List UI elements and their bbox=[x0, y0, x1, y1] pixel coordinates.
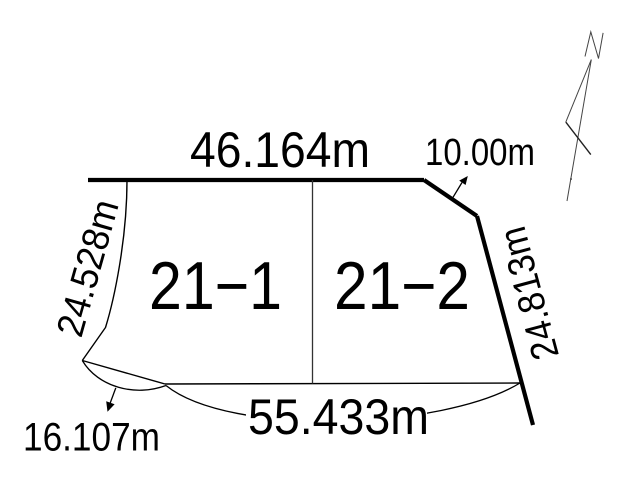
svg-text:21−2: 21−2 bbox=[334, 248, 470, 324]
svg-text:46.164m: 46.164m bbox=[190, 122, 370, 178]
svg-text:21−1: 21−1 bbox=[149, 248, 282, 324]
svg-text:55.433m: 55.433m bbox=[248, 389, 429, 445]
svg-text:16.107m: 16.107m bbox=[23, 416, 160, 460]
svg-text:10.00m: 10.00m bbox=[425, 132, 535, 174]
